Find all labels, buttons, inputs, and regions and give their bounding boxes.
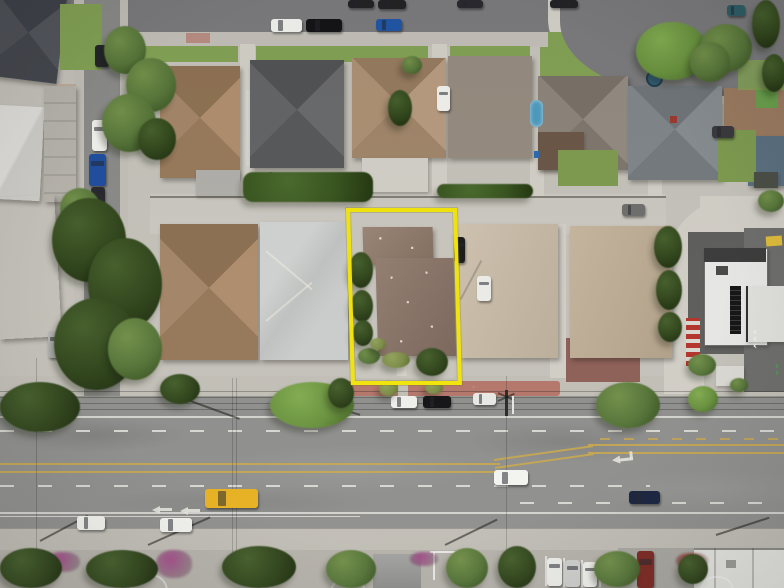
tree	[138, 118, 176, 160]
tree	[688, 354, 716, 376]
tree	[222, 546, 296, 588]
tree	[690, 42, 730, 82]
tree	[730, 378, 748, 392]
tree	[326, 550, 376, 588]
tree	[160, 374, 200, 404]
hedge	[437, 184, 533, 198]
tree	[762, 54, 784, 92]
tree	[0, 548, 62, 588]
hedge	[243, 172, 373, 202]
tree	[498, 546, 536, 588]
tree	[0, 382, 80, 432]
aerial-photo: ‹‹‹ ››	[0, 0, 784, 588]
tree	[688, 386, 718, 412]
tree	[654, 226, 682, 268]
tree	[758, 190, 784, 212]
tree	[656, 270, 682, 310]
tree	[402, 56, 422, 74]
tree	[86, 550, 158, 588]
tree	[752, 0, 780, 48]
tree	[108, 318, 162, 380]
subject-parcel-outline	[346, 208, 462, 385]
tree	[678, 554, 708, 584]
tree	[658, 312, 682, 342]
tree	[446, 548, 488, 588]
tree	[596, 382, 660, 428]
tree	[388, 90, 412, 126]
tree	[594, 551, 640, 587]
